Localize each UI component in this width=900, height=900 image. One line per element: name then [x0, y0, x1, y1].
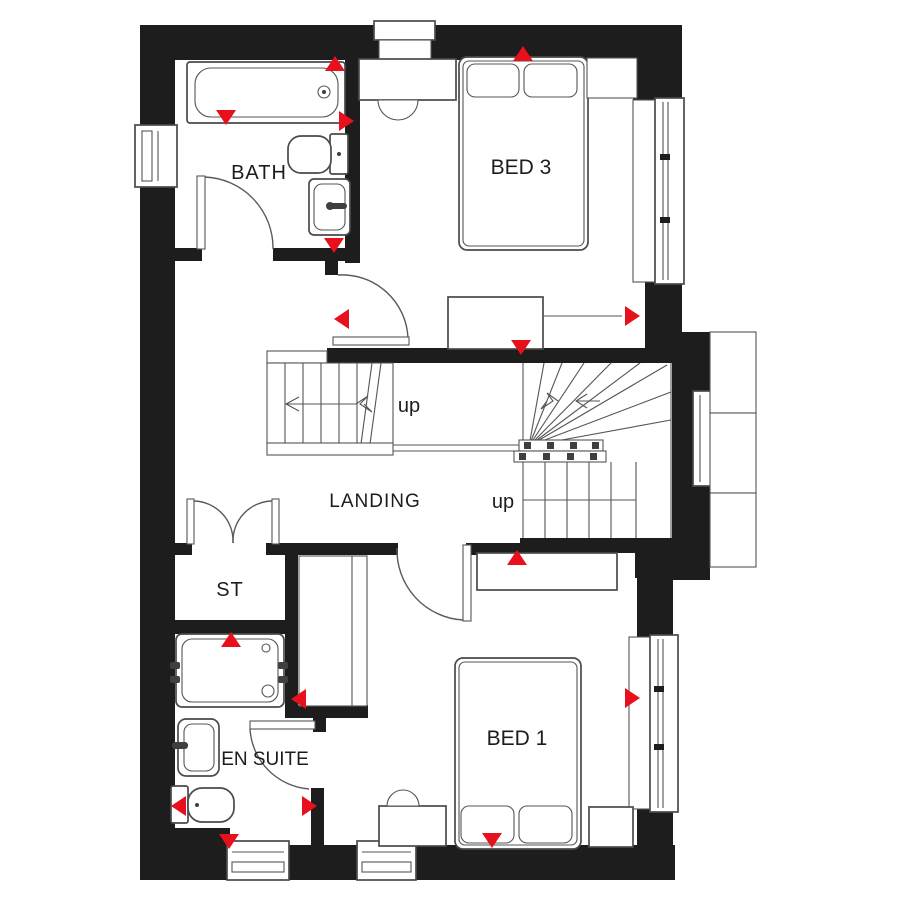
- wall-st-east: [285, 543, 298, 718]
- wall-wardrobe-south: [298, 705, 368, 718]
- window-bed3-right: [633, 98, 684, 284]
- floor-plan: BATH BED 3 LANDING up up ST EN SUITE BED…: [0, 0, 900, 900]
- bed3-desk: [359, 59, 456, 100]
- staircase-left-flight: [267, 351, 520, 455]
- ensuite-sink: [172, 719, 219, 776]
- window-bed1-right: [629, 635, 678, 812]
- room-label-bed1: BED 1: [487, 727, 548, 750]
- window-top: [374, 21, 435, 60]
- wall-st-north-left: [175, 543, 192, 555]
- wall-bath-south-left: [175, 248, 202, 261]
- direction-marker-right: [625, 306, 640, 326]
- wall-ensuite-north: [175, 620, 285, 634]
- window-ensuite-bottom: [227, 841, 289, 880]
- wall-stairwell-south: [520, 538, 690, 553]
- wall-top-right-corner: [633, 25, 682, 105]
- room-label-bath: BATH: [231, 162, 287, 184]
- room-label-st: ST: [216, 579, 244, 601]
- wall-stub-landing-door: [325, 261, 338, 275]
- st-double-doors: [187, 499, 279, 544]
- wall-bath-south-right: [273, 248, 360, 261]
- bed3-chair: [378, 100, 418, 120]
- bed3-furniture: [359, 57, 637, 349]
- stairs-up-label-left: up: [398, 395, 420, 417]
- landing-door: [333, 275, 409, 345]
- bed3-bed: [459, 57, 588, 250]
- direction-marker-left: [334, 309, 349, 329]
- bath-tub: [187, 62, 345, 123]
- bed1-furniture: [379, 553, 633, 849]
- wall-bed3-south: [327, 348, 690, 363]
- room-label-ensuite: EN SUITE: [221, 749, 309, 770]
- wall-bed1-right-upper: [637, 578, 673, 640]
- basin: [309, 179, 350, 235]
- wall-right-step: [635, 550, 710, 578]
- external-bay: [710, 332, 756, 567]
- staircase-winder: [514, 363, 671, 538]
- bed1-bed: [455, 658, 581, 849]
- ensuite-fixtures: [170, 556, 367, 823]
- bed1-wardrobe: [299, 556, 367, 706]
- floor-plan-page: BATH BED 3 LANDING up up ST EN SUITE BED…: [0, 0, 900, 900]
- bath-door: [197, 176, 273, 249]
- bed1-door: [397, 545, 471, 621]
- room-label-landing: LANDING: [329, 491, 420, 512]
- bed1-dresser: [477, 553, 617, 590]
- stairs-up-label-right: up: [492, 491, 514, 513]
- bed1-chair: [387, 790, 419, 806]
- bathroom-fixtures: [187, 62, 350, 235]
- bed3-wardrobe: [587, 58, 637, 98]
- room-label-bed3: BED 3: [491, 156, 552, 179]
- bed1-nightstand: [589, 807, 633, 847]
- wall-ensuite-bed1-divider: [311, 788, 324, 848]
- toilet: [288, 134, 348, 174]
- window-left: [135, 125, 177, 187]
- bed1-desk: [379, 806, 446, 846]
